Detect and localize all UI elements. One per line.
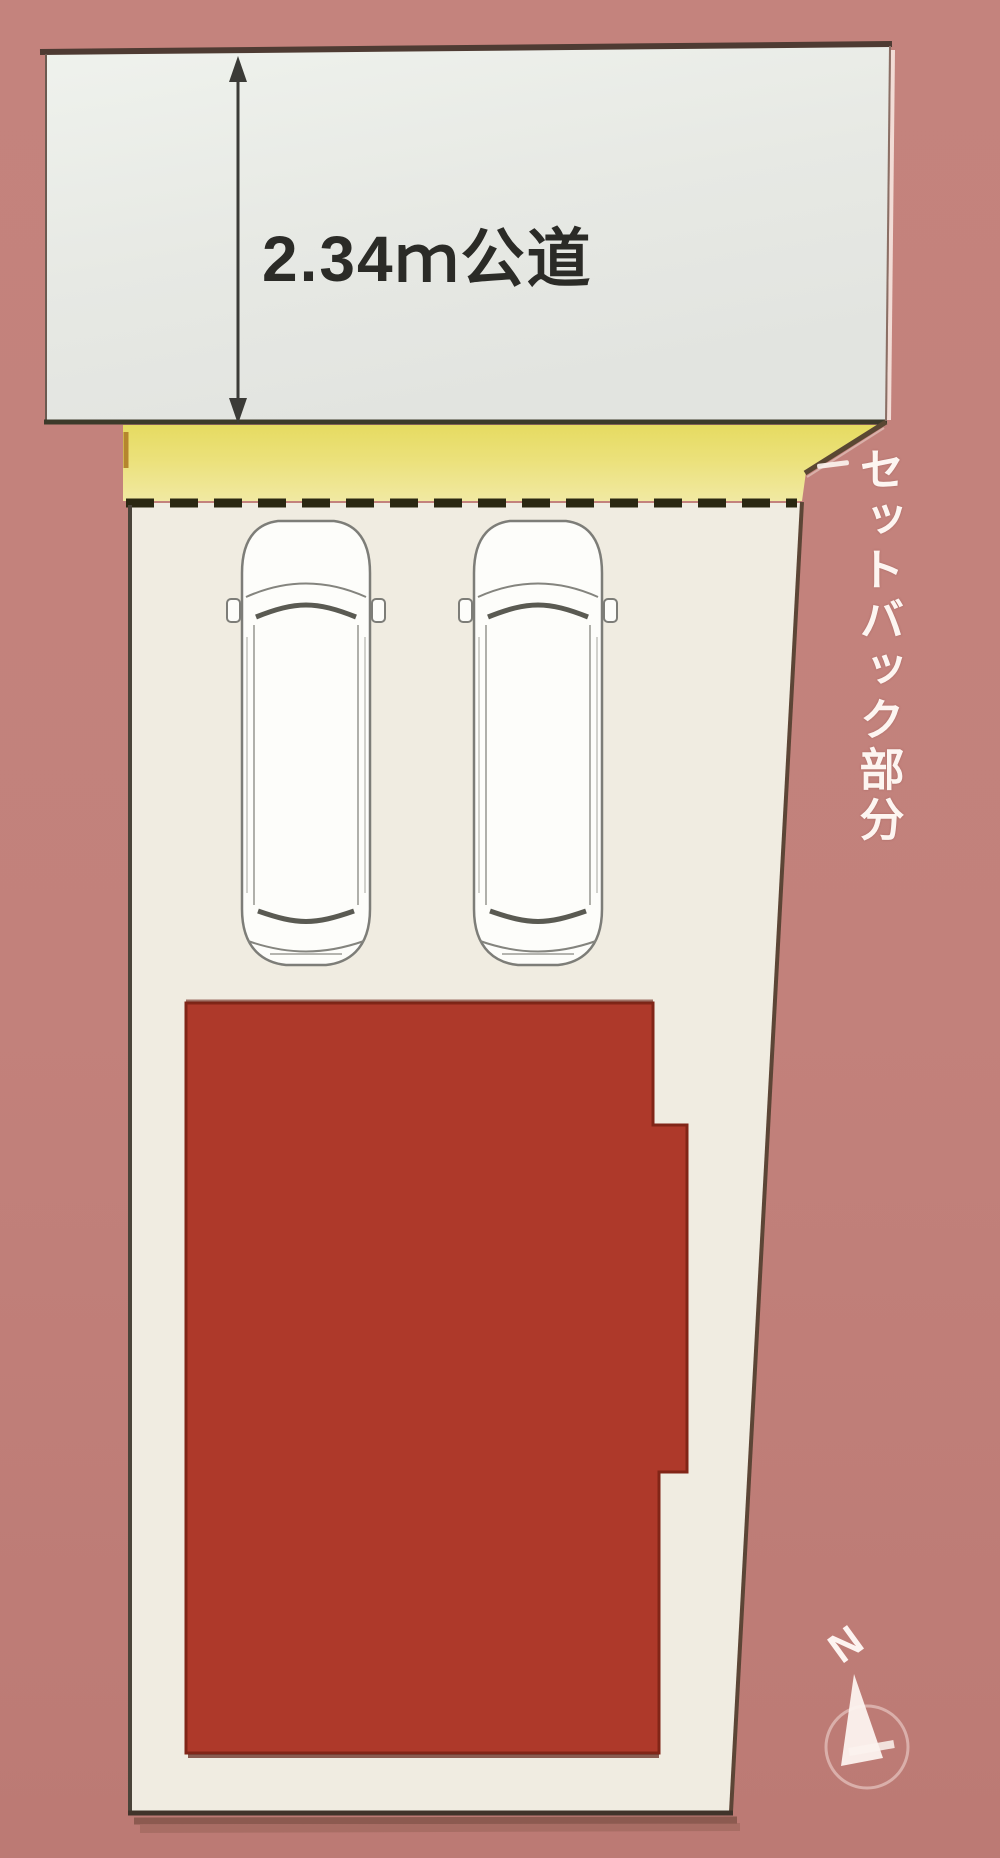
site-plan-canvas: N 2.34ｍ公道 セットバック部分: [0, 0, 1000, 1858]
car2-mirror-right: [604, 599, 617, 622]
setback-strip: [123, 425, 884, 501]
compass: N: [819, 1616, 908, 1788]
setback-label: セットバック部分: [853, 446, 903, 846]
car1-mirror-right: [372, 599, 385, 622]
car-top-view-2: [459, 521, 617, 965]
road-width-label: 2.34ｍ公道: [262, 208, 593, 300]
car2-mirror-left: [459, 599, 472, 622]
car-top-view-1: [227, 521, 385, 965]
lot-bottom-shadow-soft: [140, 1827, 740, 1829]
building-footprint: [186, 1003, 687, 1753]
car1-mirror-left: [227, 599, 240, 622]
lot-bottom-shadow: [134, 1820, 737, 1821]
compass-north-label: N: [819, 1616, 871, 1672]
